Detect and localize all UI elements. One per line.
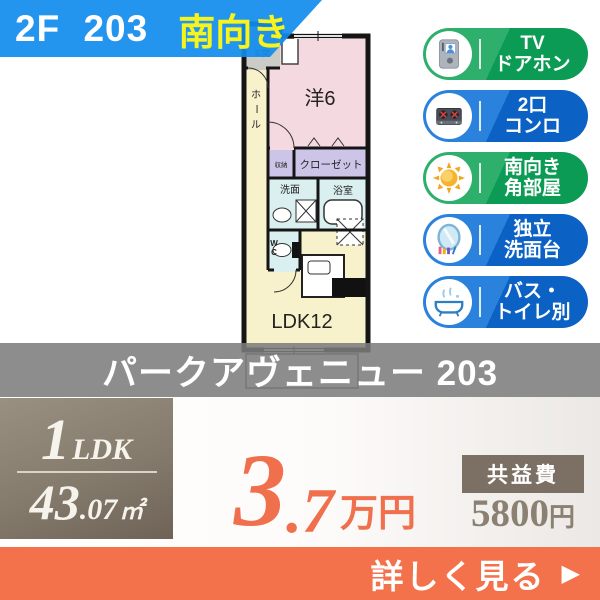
badge-line: 2口 bbox=[481, 95, 584, 116]
fee-value: 5800 bbox=[471, 492, 549, 535]
bath-label: 浴室 bbox=[333, 184, 353, 197]
washing-machine-fixture bbox=[296, 200, 316, 222]
area-dec: .07 bbox=[80, 495, 118, 525]
badge-line: コンロ bbox=[481, 116, 584, 137]
rent-price: 3 .7 万円 bbox=[190, 397, 460, 543]
closet-label: クローゼット bbox=[300, 159, 363, 171]
rent-int: 3 bbox=[234, 439, 286, 543]
feature-badges: TV ドアホン 2口 コンロ bbox=[423, 28, 588, 328]
badge-line: 南向き bbox=[481, 157, 584, 178]
washbasin-fixture bbox=[273, 208, 291, 222]
rent-dec: .7 bbox=[286, 479, 334, 543]
details-button[interactable]: 詳しく見る ▶ bbox=[0, 547, 600, 600]
details-button-label: 詳しく見る bbox=[371, 550, 546, 598]
fee-label: 共益費 bbox=[462, 455, 584, 493]
hall-label-2: ー bbox=[250, 104, 261, 114]
hall-label-3: ル bbox=[251, 120, 261, 131]
badge-line: TV bbox=[481, 33, 584, 54]
spec-divider bbox=[17, 471, 157, 473]
floor-unit-number: 2F 203 bbox=[15, 8, 148, 50]
vanity-mirror-icon bbox=[432, 223, 466, 257]
sun-icon-circle bbox=[426, 155, 472, 201]
washroom-label: 洗面 bbox=[280, 184, 300, 196]
ldk-label: LDK12 bbox=[271, 311, 332, 333]
western-room-label: 洋6 bbox=[304, 87, 335, 110]
arrow-right-icon: ▶ bbox=[562, 559, 580, 588]
bathtub-icon-circle bbox=[426, 279, 472, 325]
wc-label-1: W bbox=[270, 239, 278, 248]
badge-line: 角部屋 bbox=[481, 178, 584, 199]
badge-tv-doorphone: TV ドアホン bbox=[423, 28, 588, 80]
fee-unit: 円 bbox=[549, 503, 575, 532]
property-name: パークアヴェニュー 203 bbox=[102, 345, 498, 396]
storage-label: 収納 bbox=[275, 160, 288, 169]
layout-area-box: 1 LDK 43 .07 ㎡ bbox=[0, 398, 173, 539]
badge-line: 洗面台 bbox=[481, 240, 584, 261]
refrigerator-space bbox=[337, 219, 363, 245]
tv-doorphone-icon bbox=[432, 37, 466, 71]
stove-icon-circle bbox=[426, 93, 472, 139]
badge-two-burner-stove: 2口 コンロ bbox=[423, 90, 588, 142]
tv-doorphone-icon-circle bbox=[426, 31, 472, 77]
common-fee: 共益費 5800円 bbox=[462, 455, 584, 536]
area-unit: ㎡ bbox=[119, 500, 143, 524]
badge-line: バス・ bbox=[481, 281, 584, 302]
facing-direction: 南向き bbox=[178, 2, 289, 56]
bathtub-icon bbox=[432, 285, 466, 319]
two-burner-stove-icon bbox=[432, 99, 466, 133]
mirror-icon-circle bbox=[426, 217, 472, 263]
badge-line: 独立 bbox=[481, 219, 584, 240]
badge-line: トイレ別 bbox=[481, 302, 584, 323]
sun-icon bbox=[432, 161, 466, 195]
area-int: 43 bbox=[30, 477, 80, 527]
badge-independent-vanity: 独立 洗面台 bbox=[423, 214, 588, 266]
listing-card: 玄関 ホ ー ル 洋6 収納 クローゼット 洗面 浴室 W C LDK12 2F… bbox=[0, 0, 600, 600]
layout-type: LDK bbox=[72, 435, 132, 465]
unit-banner: 2F 203 南向き bbox=[0, 0, 322, 57]
meter-box bbox=[282, 38, 298, 64]
badge-line: ドアホン bbox=[481, 54, 584, 75]
property-name-bar: パークアヴェニュー 203 bbox=[0, 343, 600, 397]
summary-section: 1 LDK 43 .07 ㎡ 3 .7 万円 共益費 5800円 bbox=[0, 397, 600, 547]
hall-label-1: ホ bbox=[251, 89, 261, 101]
badge-separate-bath-toilet: バス・ トイレ別 bbox=[423, 276, 588, 328]
badge-south-corner: 南向き 角部屋 bbox=[423, 152, 588, 204]
rent-unit: 万円 bbox=[340, 495, 416, 543]
layout-number: 1 bbox=[41, 411, 70, 469]
wc-label-2: C bbox=[271, 248, 277, 257]
floor-plan: 玄関 ホ ー ル 洋6 収納 クローゼット 洗面 浴室 W C LDK12 bbox=[236, 10, 372, 396]
